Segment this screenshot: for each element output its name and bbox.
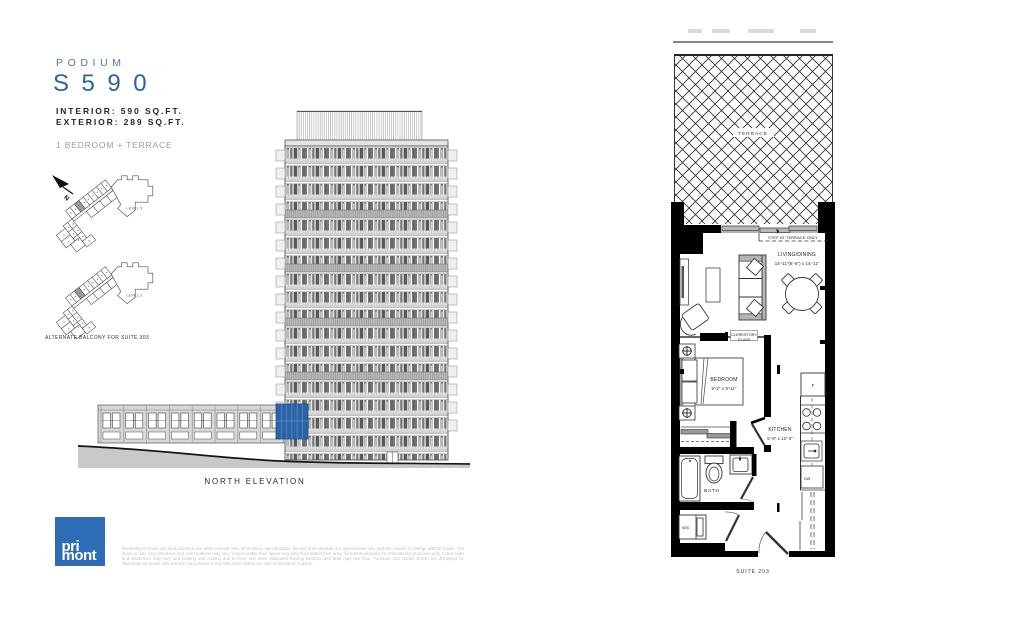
svg-text:15'-11"(6'-6") x 14'-11": 15'-11"(6'-6") x 14'-11" [775,261,820,266]
svg-text:CLERESTORY: CLERESTORY [731,333,757,337]
svg-text:GLASS: GLASS [738,338,751,342]
svg-text:SUITE 203: SUITE 203 [736,569,769,575]
svg-text:LIVING/DINING: LIVING/DINING [778,252,816,258]
svg-text:DW: DW [804,477,811,481]
svg-text:BEDROOM: BEDROOM [710,377,737,383]
svg-text:KITCHEN: KITCHEN [768,427,792,433]
svg-text:STEP AT TERRACE ONLY: STEP AT TERRACE ONLY [768,235,818,240]
svg-text:F: F [812,383,815,388]
svg-text:TERRACE: TERRACE [738,131,768,137]
svg-text:BATH: BATH [704,488,720,494]
svg-text:5'-9" x 12'-3": 5'-9" x 12'-3" [767,436,793,441]
svg-text:W/D: W/D [682,526,690,530]
svg-text:9'-2" x 9'-11": 9'-2" x 9'-11" [711,386,736,391]
